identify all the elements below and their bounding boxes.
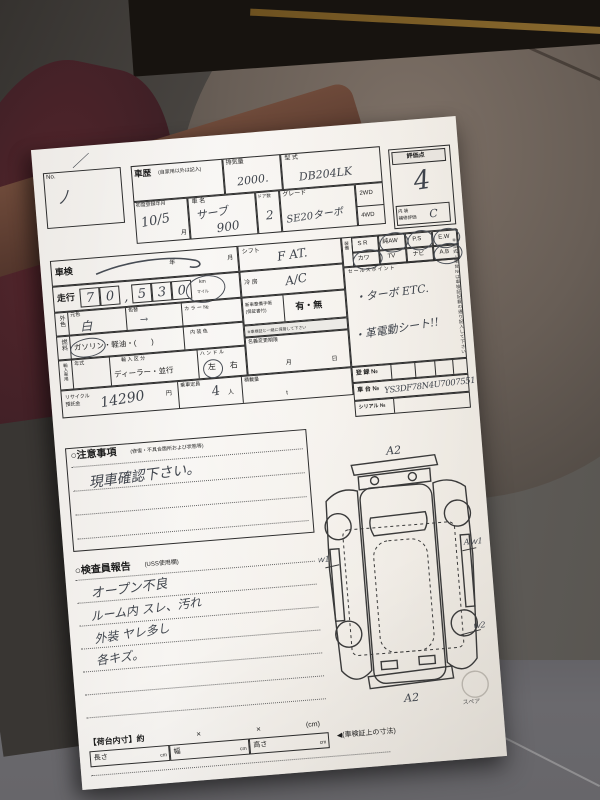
mileage-digit: 5 (137, 286, 146, 302)
first-reg-label: 初度登録年月 (136, 201, 166, 209)
load-label: 積載量 (244, 378, 259, 385)
equip-ew: E.W (438, 234, 450, 241)
inspector-dotline (87, 698, 326, 718)
score-value: 4 (412, 165, 433, 197)
warranty-sub: (保証書付) (245, 308, 266, 316)
model-code-value: DB204LK (298, 165, 353, 184)
recolor-value: → (140, 314, 149, 326)
equipment-label: 装備 (343, 241, 350, 250)
grade-cell: グレード SE20ターボ (279, 184, 358, 232)
shaken-label: 車検 (55, 267, 74, 278)
cargo-x1: × (196, 730, 201, 739)
interior-color-label: 内 装 色 (190, 330, 208, 337)
notes-box: ○注意事項 (修復・不具合箇所および状態等) 現車確認下さい。 (65, 429, 315, 552)
cargo-x2: × (256, 726, 261, 735)
sales-point-line2: ・革電動シート!! (353, 313, 440, 343)
car-name-label: 車 名 (191, 198, 205, 206)
cooling-value: A/C (284, 270, 308, 288)
first-reg-unit: 月 (181, 230, 188, 237)
handle-right: 右 (230, 361, 239, 370)
diagram-w1-left-label: ｗ1 (316, 554, 330, 564)
inspector-line-4: 各キズ。 (95, 646, 145, 669)
doors-label: ドア数 (257, 193, 271, 200)
mileage-comma: , (123, 290, 128, 305)
mileage-digit: 7 (85, 291, 94, 307)
mileage-digit: 0 (105, 289, 114, 305)
notes-title: ○注意事項 (70, 447, 117, 462)
cargo-height-label: 高さ (253, 741, 268, 750)
drive-cell: 2WD 4WD (355, 182, 386, 226)
cargo-cm-unit: (cm) (306, 721, 321, 730)
cargo-length-label: 長さ (94, 754, 109, 763)
mileage-digit-box: 5 (131, 283, 152, 304)
diagram-spare-label: スペア (462, 698, 480, 706)
serial-no-label: シリアル № (358, 404, 385, 412)
cargo-height-cell: 高さ cm (249, 732, 330, 754)
drive-2wd-label: 2WD (359, 190, 373, 198)
capacity-label: 乗車定員 (180, 382, 200, 389)
cargo-title: 【荷台内寸】約 (88, 735, 145, 748)
equip-ab: A.B (439, 249, 449, 256)
model-code-label: 型 式 (284, 155, 298, 163)
car-history-sub: (自家用以外は記入) (158, 168, 202, 177)
mileage-digit: 0 (177, 283, 186, 299)
import-label: 輸入車用 (62, 363, 69, 381)
equip-sr: S R (357, 240, 368, 247)
recolor-label: 色替 (128, 308, 138, 314)
doors-cell: ドア数 2 (255, 190, 282, 234)
color-no-label: カ ラ ー № (184, 305, 209, 312)
no-value: ノ (53, 185, 73, 209)
mileage-label: 走行 (57, 293, 76, 304)
fuel-options: ガソリン・軽油・( ) (74, 338, 154, 353)
cargo-note: ◀(車検証上の寸法) (337, 728, 396, 740)
diagram-a2-bottom-label: A2 (403, 691, 420, 705)
inspector-report: ○検査員報告 (USS使用欄) オープン不良 ルーム内 スレ、汚れ 外装 ヤレ多… (74, 547, 328, 726)
sales-point-box: セールスポイント ・ターボ ETC. ・革電動シート!! (343, 258, 467, 367)
displacement-label: 排気量 (225, 159, 243, 167)
cargo-height-cm: cm (320, 740, 327, 746)
car-diagram-svg: A2 A2 ｗ1 Aｗ1 ｗ2 スペア (310, 438, 495, 716)
notes-dotline (77, 520, 308, 540)
first-reg-cell: 初度登録年月 10/5 月 (133, 198, 190, 244)
drive-4wd-label: 4WD (361, 212, 375, 220)
car-name-value2: 900 (216, 218, 241, 235)
equip-aw: 純AW (382, 238, 398, 246)
drive-divider (357, 204, 383, 207)
mileage-digit: 3 (157, 285, 166, 301)
cargo-length-cell: 長さ cm (89, 745, 170, 767)
displacement-value: 2000. (236, 171, 269, 188)
diagram-w2-right-label: ｗ2 (472, 620, 486, 630)
notes-line1: 現車確認下さい。 (88, 458, 202, 493)
first-reg-value: 10/5 (140, 211, 171, 231)
inspector-title: ○検査員報告 (74, 561, 131, 576)
sales-point-label: セールスポイント (348, 266, 396, 275)
interior-score-value: C (429, 207, 438, 221)
cooling-label: 冷 房 (244, 279, 258, 287)
score-label-cell: 評価点 (391, 148, 446, 165)
recycle-value: 14290 (99, 388, 146, 411)
diagram-a2-top-label: A2 (385, 443, 402, 457)
divider (109, 357, 112, 385)
transfer-label: 名義変更期限 (248, 338, 278, 346)
divider (183, 327, 186, 349)
grade-label: グレード (282, 190, 306, 198)
mileage-digit-box: 0 (171, 280, 192, 301)
notes-sub: (修復・不具合箇所および状態等) (130, 444, 204, 455)
mileage-digit-box: 3 (151, 281, 172, 302)
sales-point-line1: ・ターボ ETC. (354, 280, 430, 306)
notes-dotline (75, 496, 306, 516)
no-box: No. ノ (43, 167, 125, 229)
cargo-width-label: 幅 (173, 748, 181, 756)
orig-color-value: 白 (80, 317, 93, 335)
grade-value: SE20ターボ (285, 202, 343, 225)
interior-score-cell: 内 装 補修評価 C (396, 202, 451, 226)
main-table: 車検 年 月 走行 7 0 , 5 3 0 km マイル 外色 (50, 228, 471, 440)
car-seat-photo: ／ No. ノ 車歴 (自家用以外は記入) 排気量 2000. 型 式 DB20… (0, 0, 600, 800)
shift-value: F AT. (276, 245, 308, 263)
equip-navi: ナビ (412, 251, 425, 259)
car-name-cell: 車 名 サーブ 900 (187, 192, 258, 239)
warranty-value: 有・無 (295, 300, 323, 312)
cargo-length-cm: cm (160, 753, 167, 759)
interior-score-label1: 内 装 (398, 208, 409, 215)
displacement-cell: 排気量 2000. (222, 154, 283, 195)
cargo-width-cm: cm (240, 746, 247, 752)
transfer-day: 日 (332, 357, 339, 364)
mileage-unit-mile: マイル (197, 288, 209, 295)
import-year-label: 年式 (74, 362, 84, 368)
inspector-sub: (USS使用欄) (144, 560, 179, 569)
divider (282, 295, 285, 321)
chassis-no-label: 車 台 № (357, 386, 379, 394)
shift-label: シフト (242, 248, 260, 256)
divider (69, 337, 72, 359)
warranty-label: 新車整備手帳 (245, 300, 272, 308)
capacity-unit: 人 (228, 390, 235, 397)
car-history-label: 車歴 (134, 169, 152, 180)
cargo-width-cell: 幅 cm (169, 739, 250, 761)
transfer-month: 月 (286, 360, 293, 367)
equip-ps: P.S (412, 236, 421, 243)
color-label: 外色 (57, 315, 65, 327)
recycle-unit: 円 (166, 391, 173, 398)
equip-leather: カワ (358, 255, 371, 263)
doors-value: 2 (265, 208, 274, 223)
diagram-w1-right-label: Aｗ1 (462, 536, 483, 547)
interior-score-label2: 補修評価 (398, 214, 416, 221)
import-class-label: 輸 入 区 分 (121, 357, 146, 364)
inspector-dotline (85, 675, 324, 695)
header-table: 車歴 (自家用以外は記入) 排気量 2000. 型 式 DB204LK 初度登録… (131, 146, 386, 244)
corner-tick-mark: ／ (71, 150, 88, 172)
mileage-unit-km: km (199, 280, 206, 286)
equip-tv: TV (387, 253, 395, 260)
score-label: 評価点 (406, 153, 424, 161)
mileage-digit-box: 7 (79, 287, 100, 308)
mileage-digit-box: 0 (99, 285, 120, 306)
capacity-value: 4 (210, 383, 221, 399)
no-label: No. (46, 174, 56, 181)
reg-no-label: 登 録 № (356, 369, 378, 377)
recycle-label2: 預託金 (65, 400, 81, 408)
fuel-label: 燃料 (59, 339, 67, 351)
load-unit: t (286, 391, 288, 398)
handle-label: ハ ン ド ル (200, 350, 225, 357)
shaken-month-unit: 月 (227, 255, 234, 262)
shaken-year-unit: 年 (169, 260, 176, 267)
car-diagram: A2 A2 ｗ1 Aｗ1 ｗ2 スペア (310, 438, 495, 716)
auction-sheet: ／ No. ノ 車歴 (自家用以外は記入) 排気量 2000. 型 式 DB20… (31, 116, 507, 790)
score-box: 評価点 4 内 装 補修評価 C (388, 145, 456, 230)
handle-left: 左 (208, 363, 217, 372)
import-class-value: ディーラー・並行 (114, 366, 174, 379)
